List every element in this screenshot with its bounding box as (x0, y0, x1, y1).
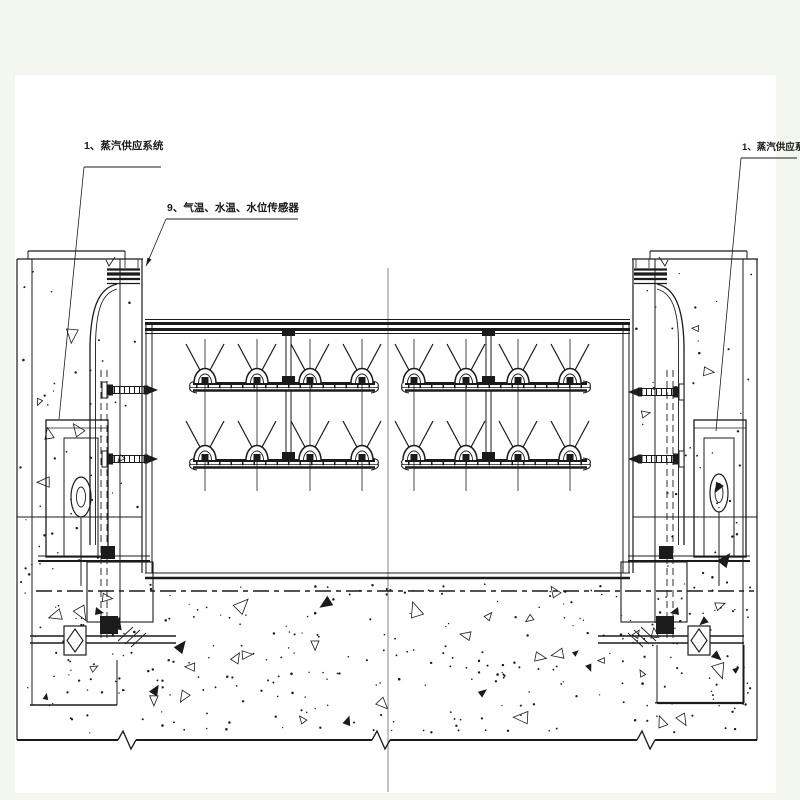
label-left-steam-text: 1、蒸汽供应系统 (84, 139, 164, 152)
engineering-drawing: 1、蒸汽供应系统 9、气温、水温、水位传感器 1、蒸汽供应系统 (0, 0, 800, 800)
label-sensors-text: 9、气温、水温、水位传感器 (167, 201, 299, 214)
label-right-steam-text: 1、蒸汽供应系统 (742, 141, 800, 153)
drawing-sheet (15, 75, 776, 793)
